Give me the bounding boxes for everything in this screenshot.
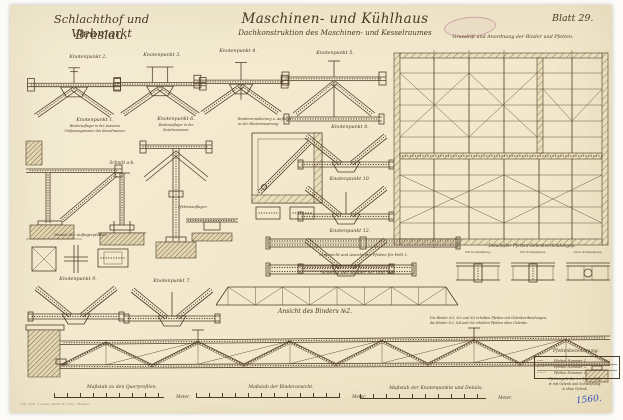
scale-binderansicht-label: Maßstab der Binderansicht. [196,385,366,390]
label-knotenpunkt-10: Knotenpunkt 10. [310,177,390,183]
scale-knotenpunkte: Maßstab der Knotenpunkte und Details. Me… [360,386,512,399]
archive-number: 1560. [576,394,603,407]
sheet-title: Maschinen- und Kühlhaus [210,11,460,27]
legend-label: Pfetten Nummer 2. [554,365,587,370]
knotenpunkt-4-drawing [192,56,290,120]
label-gelenke-title: Details der Pfetten-Gelenkverbindungen: [448,243,616,248]
plan-title: Grundriß und Anordnung der Binder und Pf… [428,35,598,41]
legend-row: ─ ─ ─Pfetten Nummer 3. [537,371,617,376]
label-knotenpunkt-5: Knotenpunkt 5. [290,51,380,57]
pfette-untersicht-drawing [266,234,462,252]
scanned-drawing-scan: Schlachthof und Viehmarkt Breslau. Masch… [0,0,623,420]
label-knotenpunkt-6: Knotenpunkt 6. [136,117,216,123]
scale-binderansicht-ruler [196,393,340,398]
label-gelenk-3: ohne Schweißung. [564,251,612,255]
label-gelenk-1: mit Schweißung. [454,251,502,255]
legend-label: Pfetten Nummer 1. [554,359,587,364]
legend-title: Pfettenbezeichnung: [536,349,616,354]
scale-unit: Meter. [498,395,512,400]
label-knotenpunkt-9: Knotenpunkt 9. [38,277,118,283]
legend-symbol: ─ ─ ─ [537,371,551,376]
truss-elevation-drawing [26,315,616,385]
project-title-line2: Breslau. [24,27,179,42]
legend-note-title: Pfettengelenke im Querschiff: [532,377,618,381]
plan-drawing [394,53,608,245]
drawing-sheet: Schlachthof und Viehmarkt Breslau. Masch… [10,5,612,413]
pfettenauflager-drawing [186,213,238,243]
label-gelenk-2: mit Schweißung. [509,251,557,255]
scale-binderansicht: Maßstab der Binderansicht. Meter. [196,385,366,398]
legend-note-1: ⊕ mit Gelenk und Schweißung. [532,383,618,387]
label-schema-title: Schema der Binder №1 und №2. [298,271,418,277]
legend-label: Pfetten Nummer 3. [554,371,587,376]
auflagerplatten-drawing [28,241,138,277]
knotenpunkt-2-drawing [24,62,124,122]
pfetten-legend: ───Pfetten Nummer 1. ─ · ─Pfetten Nummer… [534,356,620,379]
scale-unit: Meter. [176,394,190,399]
printer-note: Lith. Anst. v. Grass, Barth & Comp., Bre… [20,403,90,407]
label-knotenpunkt-1: Knotenpunkt 1. [50,118,140,124]
knotenpunkt-6-drawing [140,133,212,265]
gelenk-detail-3 [564,257,612,287]
scale-knotenpunkte-label: Maßstab der Knotenpunkte und Details. [360,386,512,391]
label-knotenpunkt-4: Knotenpunkt 4. [198,49,278,55]
blatt-number: Blatt 29. [552,13,593,24]
label-knotenpunkt-8: Knotenpunkt 8. [310,125,390,131]
legend-symbol: ─ · ─ [537,365,551,370]
label-knotenpunkt-3: Knotenpunkt 3. [122,53,202,59]
scale-querprofile: Maßstab zu den Querprofilen. Meter. [54,385,190,398]
scale-querprofile-label: Maßstab zu den Querprofilen. [54,385,190,390]
label-knotenpunkt-7: Knotenpunkt 7. [132,279,212,285]
label-knotenpunkt-6-sub2: Zwischenmauer. [136,129,216,133]
label-knotenpunkt-1-sub2: Umfassungsmauer des Kesselraumes. [46,130,144,134]
schema-drawing [212,279,462,311]
knotenpunkt-10-drawing [296,184,396,228]
knotenpunkt-8-drawing [296,132,396,176]
legend-symbol: ─── [537,359,551,364]
scale-querprofile-ruler [54,393,164,398]
label-auflagerplatten: Details der Auflagerplatten. [26,233,136,238]
label-verankerung-1: Binderverankerung u. Auflager [238,117,338,121]
gelenk-detail-2 [509,257,557,287]
label-pfettenauflager: Pfettenauflager: [178,205,240,209]
label-pfette-untersicht: Untersicht und Ansicht der Pfetten für F… [276,253,451,258]
scale-knotenpunkte-ruler [360,394,486,399]
legend-note-2: ⊖ ohne Gelenk. [532,388,618,392]
